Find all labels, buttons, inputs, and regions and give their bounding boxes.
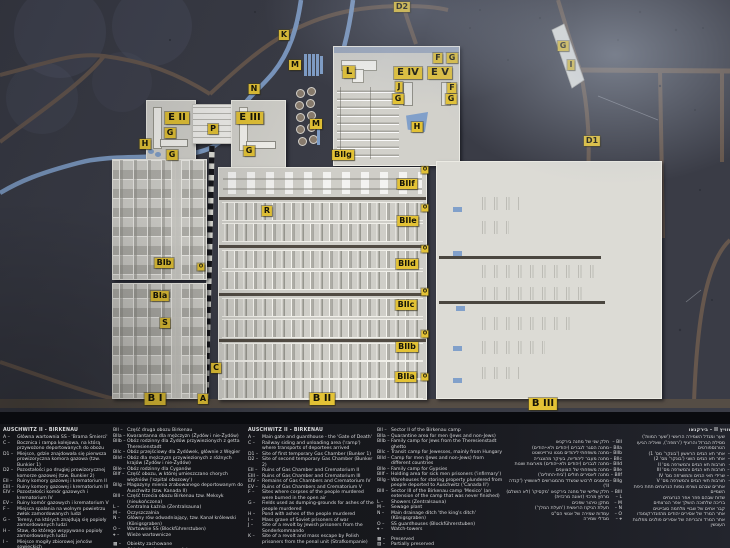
map-label-k: K: [279, 30, 289, 40]
legend-entry: BIIg –מחסנים לרכוש שנשדד מהמגורשים לאושו…: [506, 479, 622, 490]
map-label-o: O: [421, 289, 428, 296]
perimeter-road: [0, 399, 730, 408]
map-label-biic: BIIc: [396, 300, 417, 310]
legend-entry: D1 –Miejsce, gdzie znajdowała się pierws…: [3, 452, 110, 469]
legend-column-6: אושוויץ II - בירקנאוA –שער ומגדל השמירה …: [632, 428, 730, 529]
legend-entry: ⌖ –Wieże wartownicze: [113, 533, 243, 539]
legend-column-5: BII –חלק שני של מחנה בירקנאוBIIa –מחנה ה…: [506, 440, 622, 523]
map-label-biia: BIIa: [395, 372, 416, 382]
camp-map: D2KGID1MNMLFGE IVE VJFGGHE IIE IIIPGHGGB…: [0, 0, 730, 412]
biii-barrack-outlines: [479, 265, 597, 278]
filter-bed: [320, 56, 323, 74]
legend: AUSCHWITZ II - BIRKENAUA –Główna wartown…: [0, 424, 730, 548]
lens-flare: [6, 62, 78, 134]
map-label-ev: E V: [428, 67, 452, 79]
map-label-n: N: [249, 84, 260, 94]
map-label-p: P: [208, 124, 218, 134]
biic-barracks: [222, 298, 423, 317]
map-label-bib: BIb: [155, 258, 174, 268]
warehouse-barracks: [337, 87, 399, 159]
legend-entry: ⌖ –מגדלי שמירה: [506, 517, 622, 523]
legend-entry: BIIf –Część obozu, w której umieszczano …: [113, 472, 243, 483]
legend-entry: C –Bocznica i rampa kolejowa, na którą p…: [3, 441, 110, 452]
map-label-d2: D2: [394, 2, 410, 12]
map-label-o: O: [197, 264, 204, 271]
section-bii: [218, 167, 427, 400]
map-label-biif: BIIf: [397, 179, 417, 189]
biie-barracks: [222, 223, 423, 242]
biii-barrack-outlines: [479, 221, 509, 234]
legend-entry: N –Główny rów odwadniający, tzw. Kanał k…: [113, 516, 243, 527]
map-label-f: F: [447, 83, 456, 93]
legend-column-2: BII –Część druga obozu BirkenauBIIa –Kwa…: [113, 428, 243, 548]
map-label-biie: BIIe: [397, 216, 418, 226]
map-label-eii: E II: [165, 112, 189, 124]
legend-entry: ▨ –Partially preserved: [377, 542, 503, 548]
biii-reservoir: [453, 207, 462, 212]
legend-entry: C –מסילת הברזל והרציף ('רמפה'), שאליה הג…: [632, 441, 730, 452]
map-label-o: O: [421, 374, 428, 381]
filter-bed: [316, 54, 319, 76]
crematorium2-ruin-wing: [160, 139, 188, 147]
legend-entry: BIId –Camp for men (Jews and non-Jews) f…: [377, 456, 503, 467]
map-label-eiv: E IV: [394, 67, 422, 79]
map-label-h: H: [412, 122, 423, 132]
biii-reservoir: [453, 251, 462, 256]
map-label-o: O: [421, 167, 428, 174]
map-label-g: G: [167, 150, 178, 160]
legend-entry: J –Site of a revolt by Jewish prisoners …: [248, 523, 374, 534]
map-label-s: S: [160, 318, 170, 328]
map-label-g: G: [244, 146, 255, 156]
sewage-tank: [295, 101, 304, 110]
legend-entry: BIIg –Magazyny mienia zrabowanego deport…: [113, 483, 243, 494]
map-label-h: H: [140, 139, 151, 149]
crematorium4-site: [403, 82, 413, 106]
sector-road: [219, 197, 426, 200]
map-label-eiii: E III: [236, 112, 263, 124]
map-label-r: R: [262, 206, 272, 216]
legend-entry: EIV –Pozostałości komór gazowych i krema…: [3, 490, 110, 501]
biii-road-line: [439, 256, 601, 259]
legend-entry: D2 –Pozostałości po drugiej prowizoryczn…: [3, 468, 110, 479]
map-label-biig: BIIg: [332, 150, 354, 160]
biii-barrack-outlines: [479, 367, 519, 379]
filter-bed: [304, 54, 307, 76]
sewage-tank: [296, 89, 305, 98]
map-label-l: L: [343, 66, 355, 78]
section-biii-mexico: [436, 161, 662, 399]
map-label-g: G: [447, 53, 458, 63]
map-label-biib: BIIb: [396, 342, 418, 352]
legend-entry: I –Miejsce mogiły zbiorowej jeńców sowie…: [3, 540, 110, 548]
legend-entry: F –Sites where corpses of the people mur…: [248, 490, 374, 501]
biie-barracks: [222, 202, 423, 221]
legend-entry: N –Main drainage ditch 'the king's ditch…: [377, 511, 503, 522]
legend-entry: ⌖ –Watch-towers: [377, 527, 503, 533]
sewage-tank: [307, 87, 316, 96]
sector-road: [219, 293, 426, 296]
filter-bed: [312, 54, 315, 76]
legend-entry: C –Railway siding and unloading area ('r…: [248, 441, 374, 452]
map-label-d1: D1: [584, 136, 600, 146]
legend-column-1: AUSCHWITZ II - BIRKENAUA –Główna wartown…: [3, 428, 110, 548]
biii-barrack-outlines: [479, 287, 583, 300]
sewage-tank: [296, 125, 305, 134]
filter-bed: [308, 54, 311, 76]
biii-reservoir: [453, 346, 462, 351]
map-label-bia: BIa: [151, 291, 169, 301]
biid-barracks: [222, 271, 423, 290]
legend-entry: BIId –Obóz dla mężczyzn przywiezionych z…: [113, 456, 243, 467]
legend-entry: D2 –Site of second temporary Gas Chamber…: [248, 457, 374, 468]
map-label-g: G: [446, 94, 457, 104]
map-label-a: A: [198, 394, 208, 404]
biii-barrack-outlines: [479, 317, 571, 330]
map-label-j: J: [396, 82, 403, 92]
map-label-o: O: [421, 205, 428, 212]
legend-entry: F –Miejsca spalania na wolnym powietrzu …: [3, 507, 110, 518]
map-label-bi: B I: [145, 393, 166, 405]
map-label-o: O: [421, 331, 428, 338]
biii-barrack-outlines: [479, 341, 545, 354]
birkenau-map-board: D2KGID1MNMLFGE IVE VJFGGHE IIE IIIPGHGGB…: [0, 0, 730, 548]
biib-barracks: [222, 343, 423, 361]
legend-entry: BIII –Część trzecia obozu Birkenau tzw. …: [113, 494, 243, 505]
biii-reservoir: [456, 306, 465, 311]
map-label-m: M: [310, 119, 322, 129]
map-label-i: I: [568, 60, 575, 70]
map-label-biid: BIId: [396, 259, 418, 269]
legend-entry: G –Fields used as dumping-grounds for as…: [248, 501, 374, 512]
biic-barracks: [222, 319, 423, 338]
map-label-bii: B II: [310, 393, 335, 405]
legend-header: AUSCHWITZ II - BIRKENAU: [3, 428, 110, 434]
map-label-f: F: [433, 53, 442, 63]
legend-entry: BIIb –Family camp for Jews from the Ther…: [377, 439, 503, 450]
legend-entry: BIIg –Warehouses for storing property pl…: [377, 478, 503, 489]
section-crematorium3: [231, 100, 286, 170]
legend-entry: K –Site of a revolt and mass escape by P…: [248, 534, 374, 545]
legend-header: AUSCHWITZ II - BIRKENAU: [248, 428, 374, 434]
map-label-g: G: [558, 41, 569, 51]
ash-pond-small: [148, 149, 154, 154]
sector-road: [219, 339, 426, 342]
sewage-tank: [306, 99, 315, 108]
map-label-m: M: [289, 60, 301, 70]
legend-entry: G –Tereny, na których znajdują się popio…: [3, 518, 110, 529]
legend-entry: H –Staw, do którego wsypywano popioły za…: [3, 529, 110, 540]
legend-entry: BIIb –Obóz rodzinny dla Żydów przywiezio…: [113, 439, 243, 450]
biif-barracks: [223, 172, 422, 194]
legend-entry: K –אתר המרד והבריחה של אסירים פולנים מפל…: [632, 518, 730, 529]
map-label-biii: B III: [529, 398, 557, 410]
biii-road-line: [439, 301, 605, 304]
map-label-c: C: [211, 363, 221, 373]
map-label-g: G: [393, 94, 404, 104]
ash-pond-small: [155, 152, 161, 157]
map-frame-band: [0, 412, 730, 424]
legend-column-3: AUSCHWITZ II - BIRKENAUA –Main gate and …: [248, 428, 374, 545]
map-label-g: G: [165, 128, 176, 138]
biid-barracks: [222, 250, 423, 269]
sewage-tank: [298, 137, 307, 146]
sewage-tank: [296, 113, 305, 122]
biii-barrack-outlines: [479, 197, 519, 210]
legend-entry: BIII –Sector III of the Birkenau camp 'M…: [377, 489, 503, 500]
section-biig-kanada: [333, 46, 460, 166]
legend-column-4: BII –Sector II of the Birkenau campBIIa …: [377, 428, 503, 548]
legend-header: אושוויץ II - בירקנאו: [632, 428, 730, 434]
biib-barracks: [222, 361, 423, 379]
biii-reservoir: [453, 378, 462, 383]
legend-entry: F –אתרים שבהם נשרפו גופות הנרצחים תחת כי…: [632, 485, 730, 496]
map-label-o: O: [421, 246, 428, 253]
sector-road: [219, 245, 426, 248]
